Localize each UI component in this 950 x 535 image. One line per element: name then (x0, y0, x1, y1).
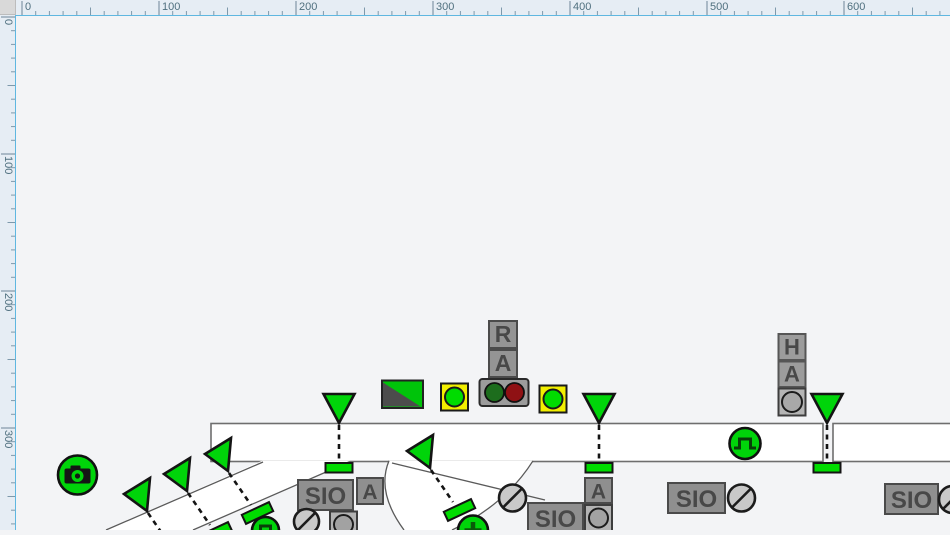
sio-box[interactable]: SIO (298, 480, 353, 510)
ruler-label: 500 (710, 1, 728, 14)
label-h: H (784, 335, 800, 360)
lamp-box[interactable] (330, 512, 357, 531)
green-lamp (445, 388, 464, 407)
ruler-vertical: 0 100 200 300 (0, 15, 16, 530)
lamp-placeholder (782, 392, 802, 412)
no-entry-icon[interactable] (728, 485, 755, 512)
schematic-editor-window: { "rulers": { "top_labels": ["0", "100",… (0, 0, 950, 530)
ruler-label: 200 (2, 293, 13, 311)
pulse-icon[interactable] (730, 428, 761, 459)
lamp-box[interactable] (585, 505, 612, 530)
split-indicator[interactable] (382, 381, 423, 409)
label-a: A (784, 362, 800, 387)
label-stack-ha[interactable]: H A (779, 334, 806, 416)
no-entry-icon[interactable] (294, 509, 319, 530)
sio-label: SIO (535, 506, 576, 530)
ruler-label: 0 (2, 19, 13, 25)
green-aspect-lamp (485, 383, 504, 402)
a-box[interactable]: A (585, 478, 612, 504)
lamp-placeholder (589, 509, 608, 528)
camera-icon[interactable] (58, 456, 97, 495)
ruler-horizontal-ticks (16, 0, 950, 15)
red-aspect-lamp (505, 383, 524, 402)
yellow-lamp-indicator[interactable] (441, 384, 468, 411)
main-track-segment[interactable] (833, 424, 950, 462)
green-lamp (544, 390, 563, 409)
label-a: A (495, 350, 512, 376)
no-entry-icon[interactable] (499, 485, 526, 512)
ruler-label: 200 (299, 1, 317, 14)
sio-box[interactable]: SIO (528, 503, 583, 530)
a-box[interactable]: A (357, 478, 383, 504)
ruler-corner (0, 0, 16, 15)
signal-head[interactable] (480, 379, 529, 406)
ruler-label: 100 (2, 156, 13, 174)
yellow-lamp-indicator[interactable] (540, 386, 567, 413)
sio-box[interactable]: SIO (668, 483, 725, 513)
ruler-label: 300 (2, 430, 13, 448)
ruler-horizontal: 0 100 200 300 400 500 600 (16, 0, 950, 16)
sio-label: SIO (305, 483, 346, 510)
sio-label: SIO (891, 487, 932, 514)
ruler-label: 600 (847, 1, 865, 14)
ruler-label: 300 (436, 1, 454, 14)
ruler-label: 400 (573, 1, 591, 14)
label-stack-ra[interactable]: R A (489, 321, 517, 377)
no-entry-icon[interactable] (939, 486, 950, 513)
ruler-vertical-ticks (0, 15, 15, 530)
drawing-canvas[interactable]: R A H A SIO A SIO A SIO (16, 15, 950, 530)
ruler-label: 0 (25, 1, 31, 14)
sio-label: SIO (676, 486, 717, 513)
label-r: R (495, 321, 512, 347)
track-schematic: R A H A SIO A SIO A SIO (16, 15, 950, 530)
a-label: A (362, 481, 377, 504)
sio-box[interactable]: SIO (885, 484, 938, 514)
lamp-placeholder (334, 515, 353, 530)
ruler-label: 100 (162, 1, 180, 14)
a-label: A (591, 481, 606, 504)
